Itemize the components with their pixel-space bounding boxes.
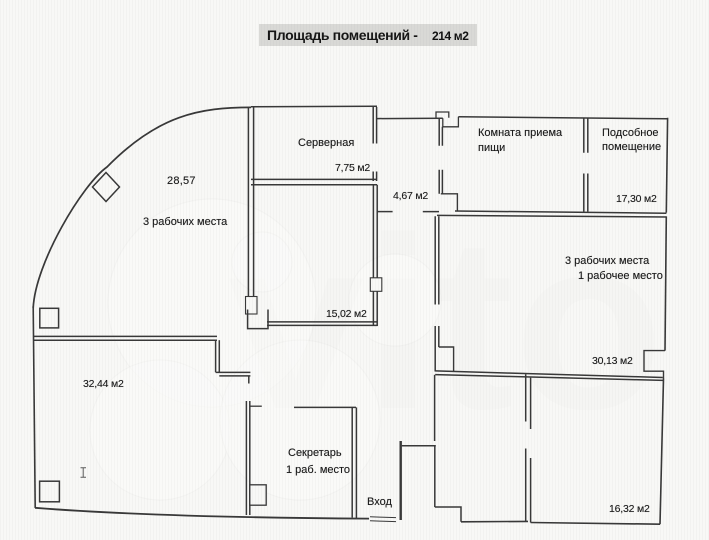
svg-text:vito: vito xyxy=(228,186,664,460)
